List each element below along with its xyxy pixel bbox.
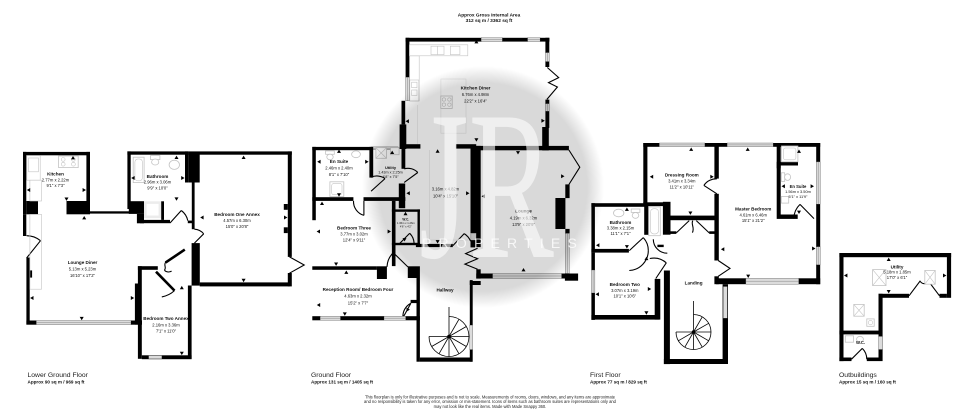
svg-text:Lower Ground Floor: Lower Ground Floor <box>28 372 89 379</box>
svg-text:16'10" x 17'2": 16'10" x 17'2" <box>70 273 96 278</box>
svg-text:Outbuildings: Outbuildings <box>839 372 877 379</box>
svg-text:2.96m x 3.06m: 2.96m x 3.06m <box>144 180 172 185</box>
svg-text:10'1" x 10'6": 10'1" x 10'6" <box>613 294 636 299</box>
svg-text:5'1" x 11'9": 5'1" x 11'9" <box>789 194 809 199</box>
svg-text:9'1" x 7'3": 9'1" x 7'3" <box>46 183 65 188</box>
svg-text:Approx 131 sq m / 1405 sq ft: Approx 131 sq m / 1405 sq ft <box>311 380 374 385</box>
svg-text:2.16m x 3.36m: 2.16m x 3.36m <box>152 322 180 327</box>
svg-text:15'1" x 21'2": 15'1" x 21'2" <box>742 218 765 223</box>
svg-text:4.57m x 6.30m: 4.57m x 6.30m <box>223 218 251 223</box>
svg-text:Kitchen: Kitchen <box>47 172 64 177</box>
svg-text:may not look like the real ite: may not look like the real items. Made w… <box>434 404 547 409</box>
svg-text:Approx 15 sq m / 160 sq ft: Approx 15 sq m / 160 sq ft <box>839 380 896 385</box>
svg-text:Ground Floor: Ground Floor <box>311 372 352 379</box>
svg-text:Bedroom One Annex: Bedroom One Annex <box>214 212 260 217</box>
svg-text:Approx 90 sq m / 969 sq ft: Approx 90 sq m / 969 sq ft <box>28 380 85 385</box>
svg-text:4.63m x 2.32m: 4.63m x 2.32m <box>344 294 372 299</box>
svg-text:2.46m x 2.40m: 2.46m x 2.40m <box>325 166 353 171</box>
svg-text:3.38m x 2.15m: 3.38m x 2.15m <box>607 226 635 231</box>
svg-text:Bedroom Three: Bedroom Three <box>337 225 371 230</box>
svg-text:8'1" x 7'10": 8'1" x 7'10" <box>329 172 350 177</box>
svg-text:Bedroom Two: Bedroom Two <box>610 282 640 287</box>
svg-text:11'1" x 7'1": 11'1" x 7'1" <box>610 231 631 236</box>
svg-text:7'1" x 11'0": 7'1" x 11'0" <box>156 329 177 334</box>
svg-text:Lounge Diner: Lounge Diner <box>68 260 98 265</box>
svg-text:Bathroom: Bathroom <box>147 174 169 179</box>
svg-text:W.C.: W.C. <box>856 340 865 345</box>
svg-text:Bedroom Two Annex: Bedroom Two Annex <box>143 316 189 321</box>
svg-text:Bathroom: Bathroom <box>610 220 632 225</box>
svg-text:Reception Room/ Bedroom Four: Reception Room/ Bedroom Four <box>323 287 394 292</box>
svg-text:3.07m x 3.19m: 3.07m x 3.19m <box>611 288 639 293</box>
svg-text:Dressing Room: Dressing Room <box>665 173 699 178</box>
svg-text:9'9" x 10'0": 9'9" x 10'0" <box>147 186 168 191</box>
svg-text:JR: JR <box>419 67 554 303</box>
svg-text:Landing: Landing <box>685 280 703 285</box>
svg-text:3.77m x 3.02m: 3.77m x 3.02m <box>340 232 368 237</box>
svg-text:First Floor: First Floor <box>590 372 621 379</box>
svg-text:15'0" x 20'8": 15'0" x 20'8" <box>226 224 249 229</box>
svg-text:11'2" x 10'11": 11'2" x 10'11" <box>670 185 695 190</box>
svg-text:2.77m x 2.22m: 2.77m x 2.22m <box>42 177 70 182</box>
svg-text:Master Bedroom: Master Bedroom <box>735 206 771 211</box>
svg-text:15'2" x 7'7": 15'2" x 7'7" <box>348 300 369 305</box>
svg-text:Approx Gross Internal Area: Approx Gross Internal Area <box>458 12 521 18</box>
svg-text:5.13m x 5.23m: 5.13m x 5.23m <box>69 267 97 272</box>
svg-text:5.18m x 1.85m: 5.18m x 1.85m <box>883 270 911 275</box>
svg-text:Approx 77 sq m / 829 sq ft: Approx 77 sq m / 829 sq ft <box>590 380 647 385</box>
svg-text:17'0" x 6'1": 17'0" x 6'1" <box>887 275 908 280</box>
svg-text:4.61m x 6.46m: 4.61m x 6.46m <box>740 212 768 217</box>
svg-text:12'4" x 9'11": 12'4" x 9'11" <box>343 238 366 243</box>
svg-text:En Suite: En Suite <box>330 159 349 164</box>
svg-text:PROPERTIES: PROPERTIES <box>422 235 584 251</box>
svg-text:3.41m x 3.34m: 3.41m x 3.34m <box>668 179 696 184</box>
svg-text:312 sq m / 3362 sq ft: 312 sq m / 3362 sq ft <box>466 18 513 24</box>
svg-text:Utility: Utility <box>891 264 904 269</box>
